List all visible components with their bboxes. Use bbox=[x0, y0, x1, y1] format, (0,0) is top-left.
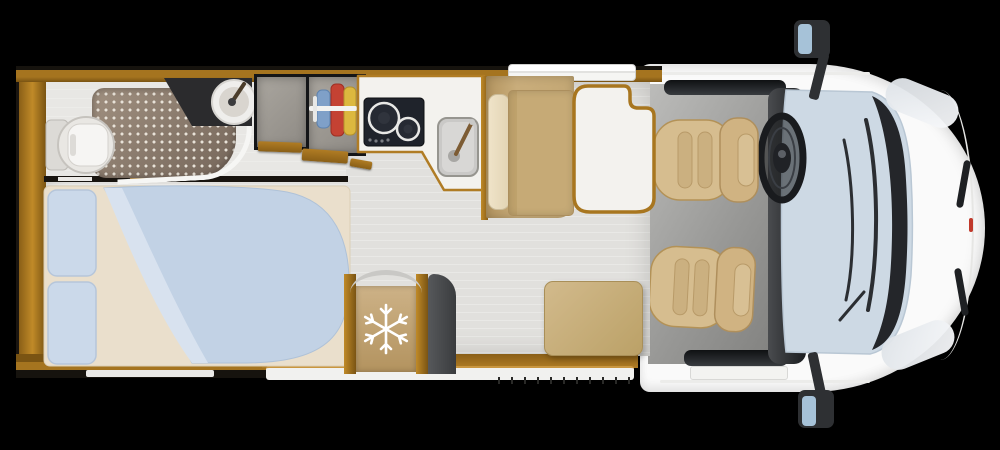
front-badge bbox=[969, 218, 973, 232]
toilet bbox=[44, 112, 120, 178]
floorplan-canvas bbox=[0, 0, 1000, 450]
washbasin-vanity bbox=[160, 76, 260, 132]
skirt-vents bbox=[498, 377, 636, 384]
cab-door-sill-top bbox=[664, 80, 786, 95]
wood-step bbox=[258, 141, 302, 153]
snowflake-icon bbox=[362, 300, 410, 358]
fridge-side-panel bbox=[428, 274, 456, 374]
kitchen-sink bbox=[434, 112, 484, 180]
roof-seam-bottom bbox=[660, 380, 870, 383]
hob-burners-icon bbox=[362, 96, 426, 148]
mirror-glass bbox=[798, 24, 812, 54]
dinette-table bbox=[568, 82, 662, 222]
hangers-icon bbox=[308, 76, 358, 148]
pillow bbox=[48, 190, 96, 276]
pillow bbox=[48, 282, 96, 364]
ottoman bbox=[544, 281, 643, 356]
driver-seat bbox=[652, 114, 764, 206]
mirror-glass bbox=[802, 396, 816, 426]
rear-bed bbox=[42, 182, 356, 372]
storage-cabinet bbox=[254, 74, 310, 150]
bench-cushion bbox=[508, 90, 574, 216]
bench-backrest bbox=[488, 94, 510, 210]
roof-seam-top bbox=[660, 72, 870, 75]
passenger-seat bbox=[646, 239, 763, 337]
